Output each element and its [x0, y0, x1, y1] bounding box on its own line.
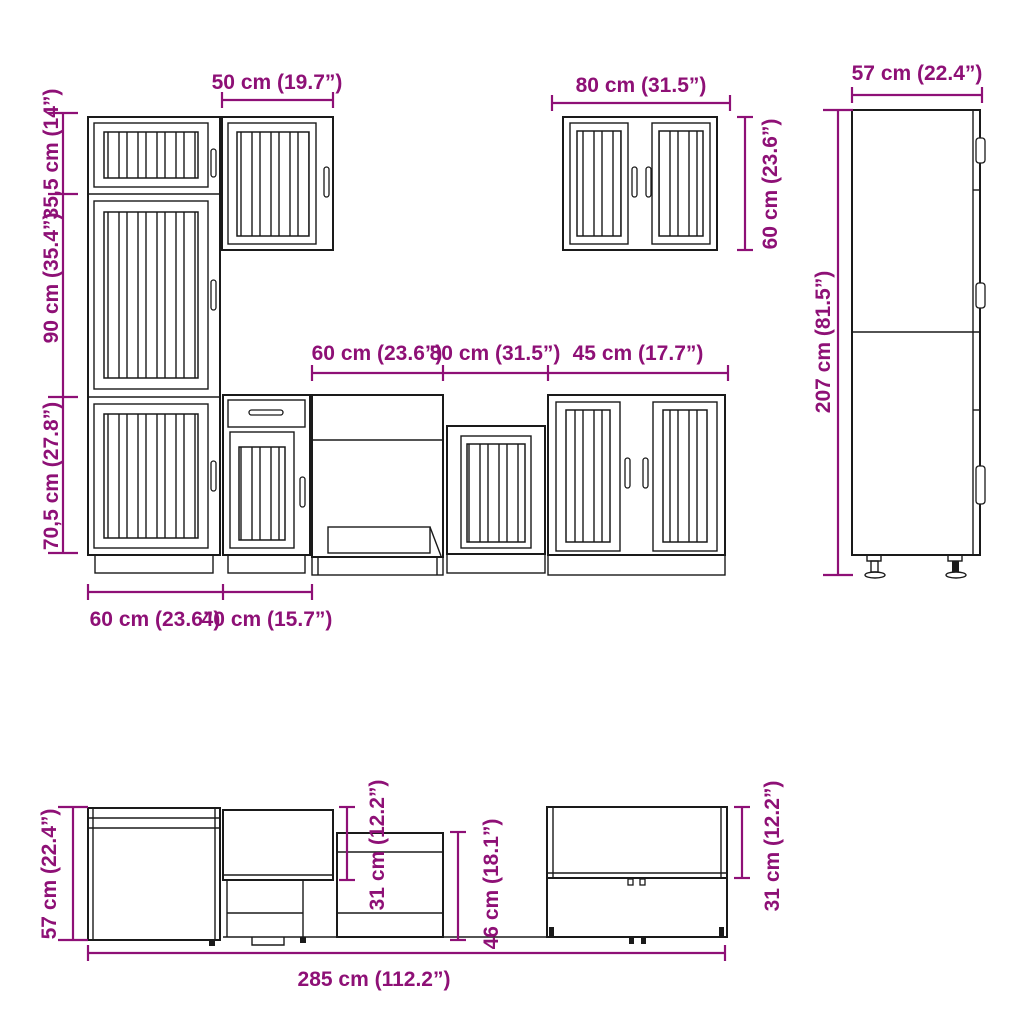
- door-handle: [300, 477, 305, 507]
- adjustable-foot: [865, 555, 885, 578]
- wall-cabinet-50-front: [222, 117, 333, 250]
- dim-label-total285: 285 cm (112.2”): [298, 968, 451, 991]
- base-cabinet-60-open-front: [312, 395, 443, 575]
- diagram-canvas: 50 cm (19.7”) 35,5 cm (14”) 90 cm (35.4”…: [0, 0, 1024, 1024]
- base-cabinet-45-double-front: [548, 395, 725, 575]
- door-handle: [625, 458, 630, 488]
- dim-label-tall57-width: 57 cm (22.4”): [852, 62, 983, 85]
- dim-label-depth46: 46 cm (18.1”): [480, 819, 503, 950]
- dim-label-wall-depth-right: 31 cm (12.2”): [761, 781, 784, 912]
- dim-label-wall-depth-left: 31 cm (12.2”): [366, 780, 389, 911]
- corner-mark: [549, 927, 554, 936]
- door-handle: [976, 283, 985, 308]
- dim-label-tall207-height: 207 cm (81.5”): [812, 271, 835, 413]
- foot-mark: [209, 940, 215, 946]
- plan-46-block: [337, 833, 443, 937]
- door-handle: [211, 280, 216, 310]
- hinge-mark: [640, 879, 645, 885]
- dim-label-depth57: 57 cm (22.4”): [38, 809, 61, 940]
- plan-view: [88, 807, 727, 946]
- plan-wall-block-right: [547, 807, 727, 944]
- door-handle: [632, 167, 637, 197]
- corner-mark: [719, 927, 724, 936]
- tall-cabinet-60-front: [88, 117, 220, 573]
- dim-label-tall-mid-height: 90 cm (35.4”): [40, 213, 63, 344]
- foot-mark: [641, 937, 646, 944]
- drawer-handle: [249, 410, 283, 415]
- dim-label-base40-width: 40 cm (15.7”): [202, 608, 333, 631]
- dim-label-run60-width: 60 cm (23.6”): [312, 342, 443, 365]
- dim-label-tall-low-height: 70,5 cm (27.8”): [40, 402, 63, 550]
- door-handle: [976, 138, 985, 163]
- tall-cabinet-side-view: [852, 110, 985, 578]
- kitchen-dimension-drawing: 50 cm (19.7”) 35,5 cm (14”) 90 cm (35.4”…: [0, 0, 1024, 1024]
- foot-mark: [300, 937, 306, 943]
- door-handle: [643, 458, 648, 488]
- door-handle: [976, 466, 985, 504]
- base-cabinet-40-front: [223, 395, 310, 573]
- adjustable-foot: [946, 555, 966, 578]
- recessed-pull: [252, 937, 284, 945]
- dim-label-wall80-height: 60 cm (23.6”): [759, 119, 782, 250]
- hinge-mark: [628, 879, 633, 885]
- dim-label-tall-top-height: 35,5 cm (14”): [40, 89, 63, 220]
- door-handle: [211, 461, 216, 491]
- dim-label-wall50-width: 50 cm (19.7”): [212, 71, 343, 94]
- wall-cabinet-80-front: [563, 117, 717, 250]
- door-handle: [324, 167, 329, 197]
- door-handle: [211, 149, 216, 177]
- dim-label-wall80-width: 80 cm (31.5”): [576, 74, 707, 97]
- door-handle: [646, 167, 651, 197]
- base-cabinet-80-front: [447, 426, 545, 573]
- plan-tall-cabinet-block: [88, 808, 220, 946]
- dim-label-run45-width: 45 cm (17.7”): [573, 342, 704, 365]
- foot-mark: [629, 937, 634, 944]
- dim-label-run80-width: 80 cm (31.5”): [430, 342, 561, 365]
